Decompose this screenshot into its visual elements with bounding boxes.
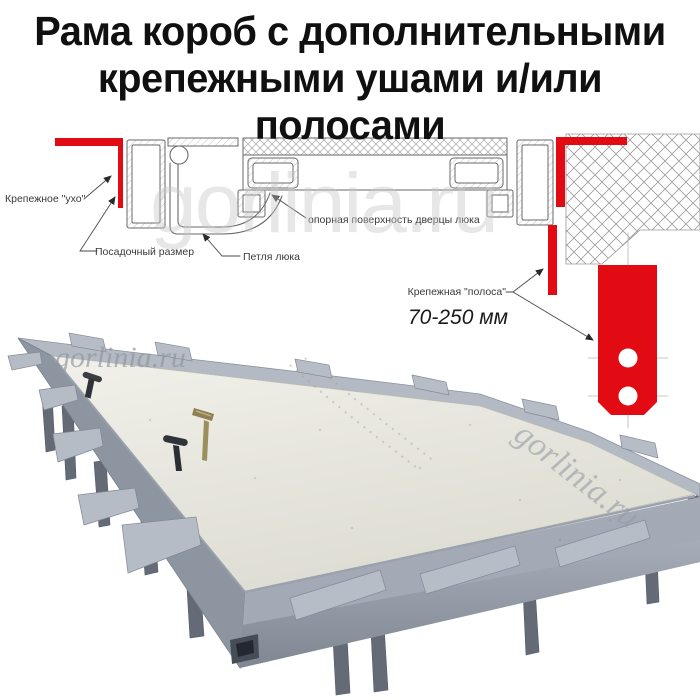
label-strip-range: 70-250 мм	[408, 306, 508, 329]
wall-hatch	[566, 134, 700, 264]
watermark-panel: gorlinia.ru	[55, 341, 186, 374]
label-strip: Крепежная "полоса"	[408, 286, 507, 298]
section-photo: gorlinia.ru gorlinia.ru	[8, 333, 700, 695]
frame-profile-right	[517, 140, 553, 225]
title-line-1: Рама короб с дополнительными	[11, 8, 690, 55]
page-title: Рама короб с дополнительными крепежными …	[11, 8, 690, 149]
product-image: Рама короб с дополнительными крепежными …	[0, 0, 700, 700]
strip-hole-bottom	[619, 387, 638, 406]
title-line-2: крепежными ушами и/или полосами	[11, 55, 690, 149]
label-ear: Крепежное "ухо"	[5, 193, 86, 205]
watermark-main: gorlinia.ru	[150, 156, 497, 250]
label-hinge: Петля люка	[243, 251, 300, 263]
strip-side-view-red	[548, 225, 557, 295]
strip-hole-top	[619, 349, 638, 368]
